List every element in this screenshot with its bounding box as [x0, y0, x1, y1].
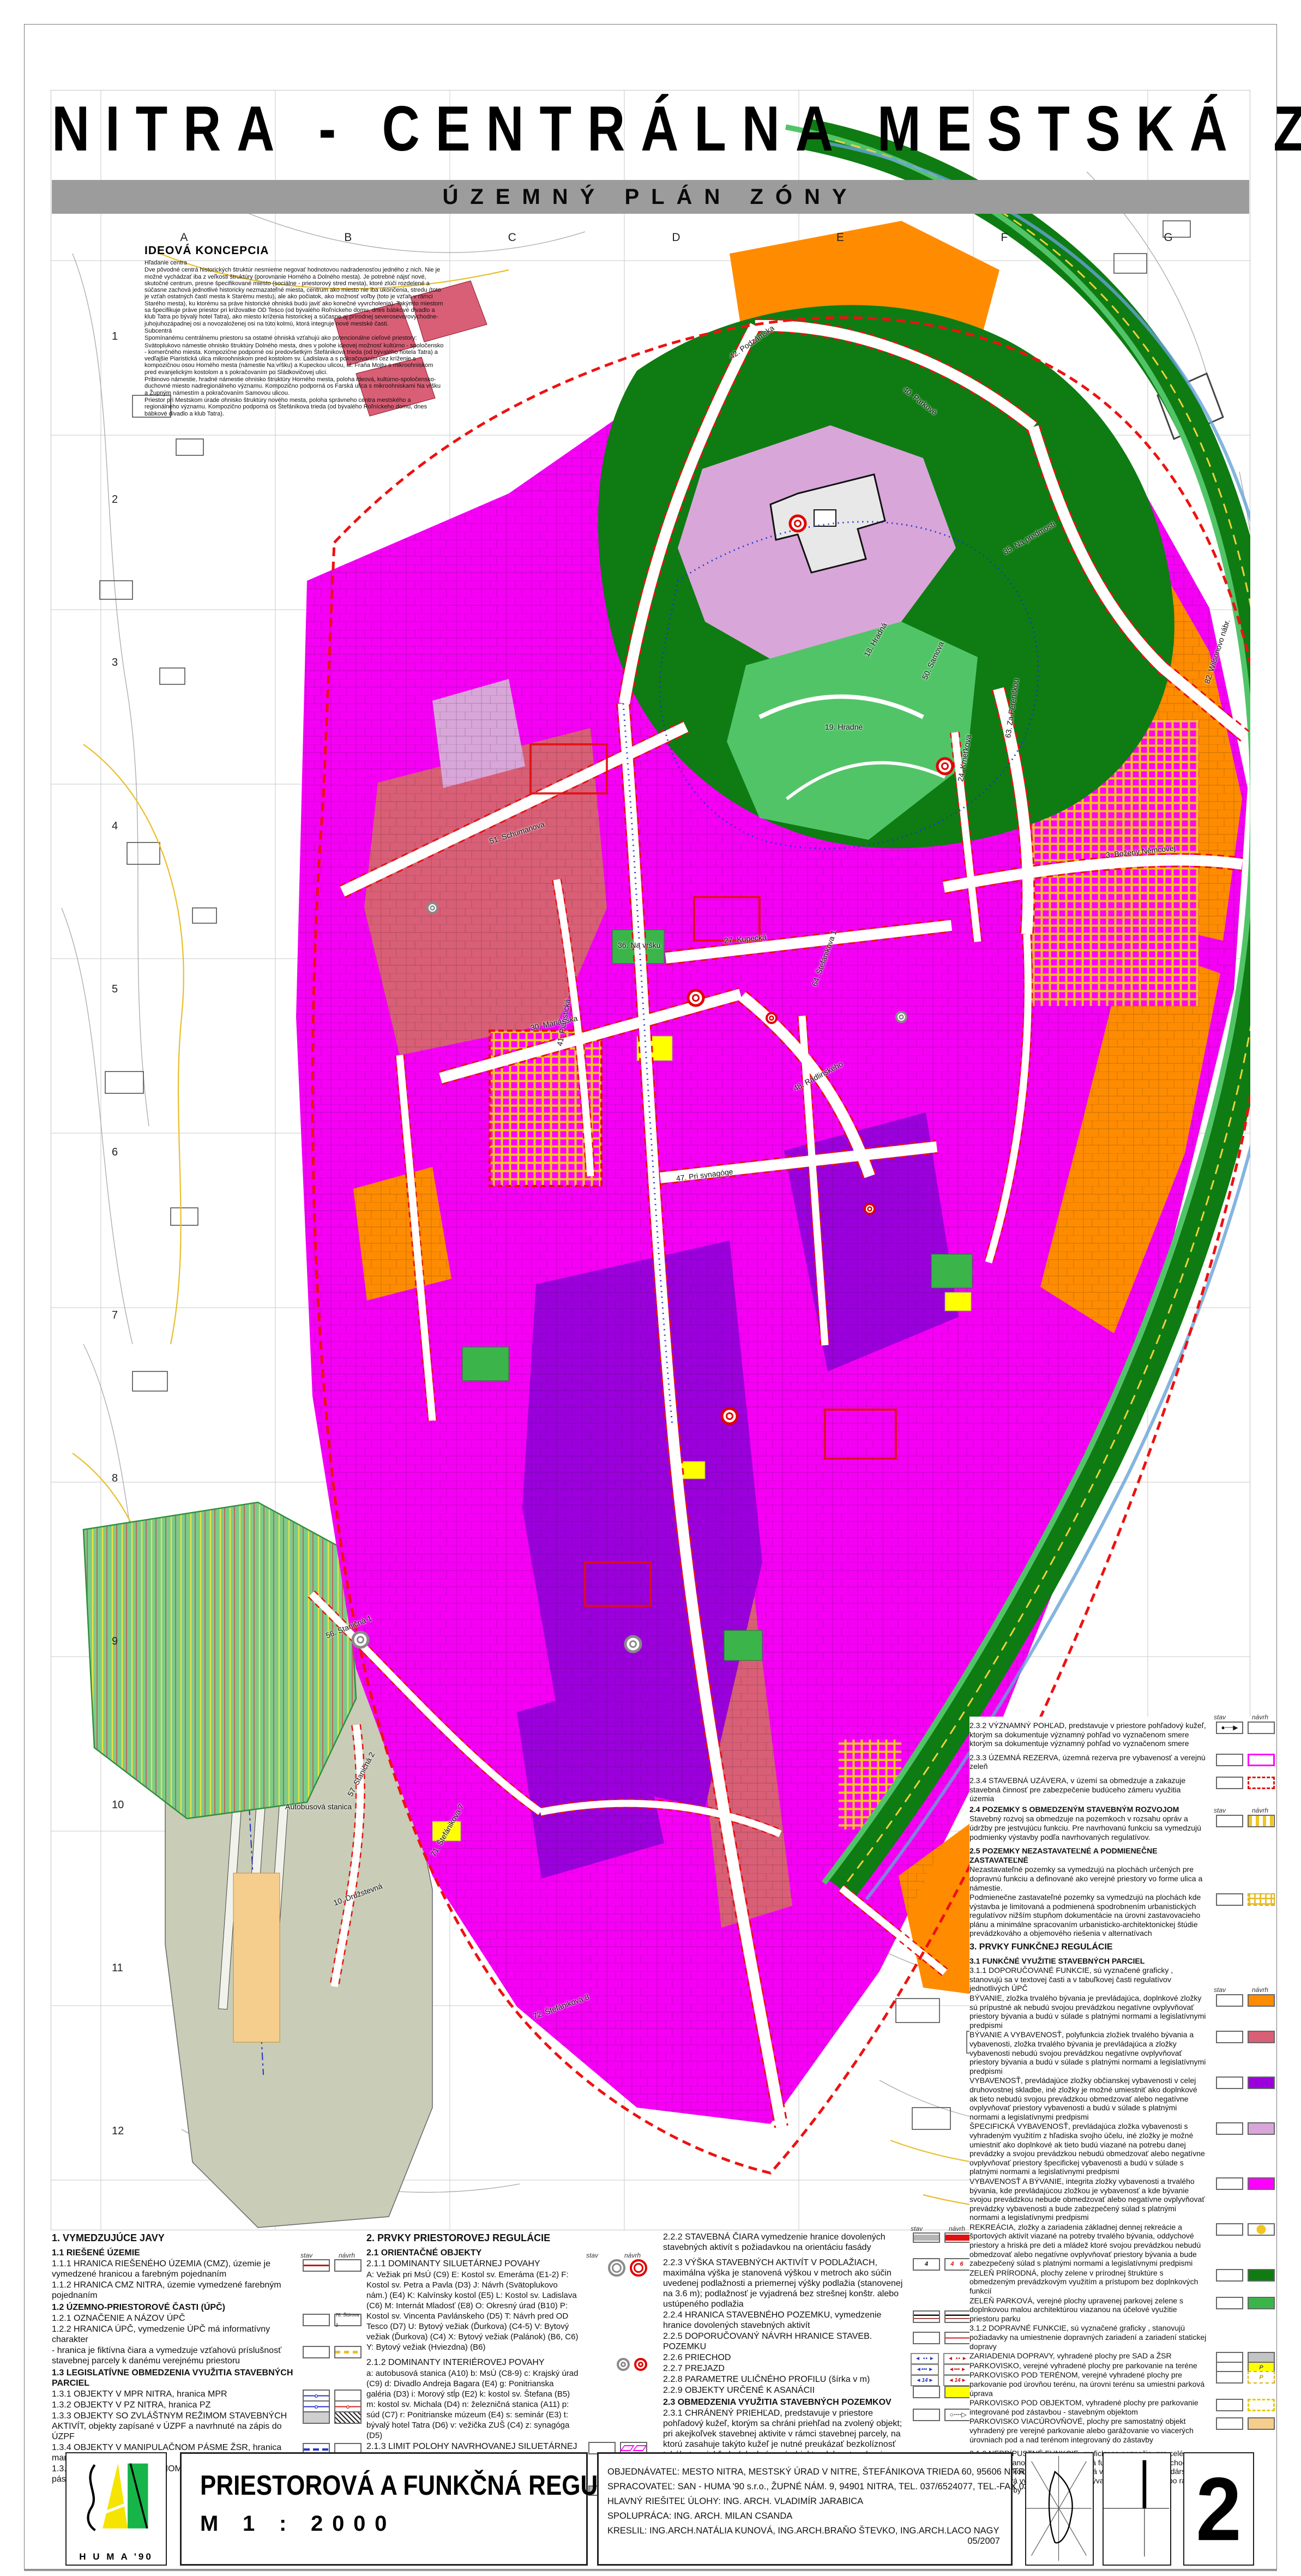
- legend-symbols: [1216, 1754, 1275, 1766]
- legend-item-text: 2.1.1 DOMINANTY SILUETÁRNEJ POVAHY: [366, 2259, 540, 2268]
- legend-item-text: 2.2.8 PARAMETRE ULIČNÉHO PROFILU (šírka …: [663, 2375, 870, 2384]
- street-label: 40. Parkové: [901, 385, 939, 417]
- legend-item: 2.2.6 PRIECHOD: [663, 2352, 972, 2363]
- legend-symbols: [1216, 2177, 1275, 2190]
- symbol-stav: [1216, 1722, 1243, 1734]
- stav-navrh-labels: stavnávrh: [1209, 1806, 1273, 1815]
- legend-item-text: Podmienečne zastavateľné pozemky sa vyme…: [969, 1893, 1201, 1937]
- drawing-scale: M 1 : 2000: [200, 2512, 586, 2536]
- street-label: 48. Radlinského: [792, 1060, 844, 1093]
- legend-item: Podmienečne zastavateľné pozemky sa vyme…: [969, 1893, 1275, 1938]
- street-label: 10. Družstevná: [332, 1881, 383, 1907]
- symbol-stav: [1216, 2371, 1243, 2384]
- legend-item-text: PARKOVISKO POD OBJEKTOM, vyhradené ploch…: [969, 2398, 1198, 2416]
- legend-item-text: 2.4 POZEMKY S OBMEDZENÝM STAVEBNÝM ROZVO…: [969, 1805, 1179, 1814]
- symbol-stav: [913, 2386, 940, 2398]
- symbol-stav: [1216, 1994, 1243, 2007]
- credit-line: SPOLUPRÁCA: ING. ARCH. MILAN CSANDA: [607, 2509, 1002, 2524]
- legend-item-text: 1.3.2 OBJEKTY V PZ NITRA, hranica PZ: [52, 2400, 210, 2410]
- legend-symbols: [1216, 1777, 1275, 1789]
- credit-line: KRESLIL: ING.ARCH.NATÁLIA KUNOVÁ, ING.AR…: [607, 2524, 1002, 2538]
- legend-item: 2.3.4 STAVEBNÁ UZÁVERA, v území sa obmed…: [969, 1776, 1275, 1803]
- legend-symbols: [1216, 2417, 1275, 2430]
- symbol-navrh: [334, 2346, 362, 2358]
- sheet-number-box: 2: [1183, 2452, 1254, 2566]
- legend-symbols: [911, 2364, 972, 2375]
- legend-item-text: 2.2.6 PRIECHOD: [663, 2353, 731, 2362]
- street-label: 51. Schumanova: [489, 820, 546, 846]
- concept-paragraph: Priestor pri Mestskom úrade ohnisko štru…: [144, 397, 445, 417]
- symbol-navrh: 14: [943, 2375, 972, 2386]
- legend-item-text: 2. PRVKY PRIESTOROVEJ REGULÁCIE: [366, 2232, 550, 2243]
- street-label: 57. Staničná 2: [346, 1750, 376, 1798]
- street-label: 72. Štefánikova 8: [532, 1992, 590, 2020]
- keyplan-diagram: [1025, 2452, 1094, 2566]
- legend-item-text: 1.3.1 OBJEKTY V MPR NITRA, hranica MPR: [52, 2390, 227, 2399]
- legend-symbols: [1216, 1994, 1275, 2007]
- legend-item-text: - hranica je fiktívna čiara a vymedzuje …: [52, 2346, 281, 2366]
- legend-item-text: 1.1.2 HRANICA CMZ NITRA, územie vymedzen…: [52, 2280, 281, 2300]
- symbol-navrh: [943, 2364, 972, 2375]
- legend-item: 3.1.2 DOPRAVNÉ FUNKCIE, sú vyznačené gra…: [969, 2324, 1275, 2351]
- symbol-stav: [913, 2409, 940, 2421]
- legend-item: BÝVANIE A VYBAVENOSŤ, polyfunkcia zložie…: [969, 2030, 1275, 2075]
- symbol-stav: [1216, 2399, 1243, 2411]
- symbol-navrh: [1248, 2122, 1275, 2135]
- legend-item-text: 2.1.2 DOMINANTY INTERIÉROVEJ POVAHY: [366, 2358, 545, 2367]
- legend-item: PARKOVISKO VIACÚROVŇOVÉ, plochy pre samo…: [969, 2417, 1275, 2444]
- grid-number: 8: [112, 1397, 128, 1560]
- concept-paragraph: Pribinovo námestie, hradné námestie ohni…: [144, 376, 445, 396]
- symbol-stav: [1216, 2417, 1243, 2430]
- symbol-stav: [1216, 2297, 1243, 2309]
- legend-item: REKREÁCIA, zložky a zariadenia základnej…: [969, 2223, 1275, 2268]
- legend-symbols: [303, 2346, 362, 2358]
- symbol-stav: [911, 2353, 939, 2364]
- legend-item: 2.3.2 VÝZNAMNÝ POHĽAD, predstavuje v pri…: [969, 1721, 1275, 1748]
- symbol-stav: [303, 2259, 330, 2272]
- grid-number: 2: [112, 418, 128, 581]
- legend-item-text: 3.1.2 DOPRAVNÉ FUNKCIE, sú vyznačené gra…: [969, 2324, 1206, 2350]
- street-label: 63. Za Ferenitkou: [1003, 678, 1020, 738]
- legend-item: VYBAVENOSŤ, prevládajúce zložky občiansk…: [969, 2076, 1275, 2121]
- grid-row-numbers: 123456789101112: [112, 255, 128, 2213]
- symbol-stav: 14: [911, 2375, 939, 2386]
- grid-number: 5: [112, 908, 128, 1071]
- street-label: 71. Štefánikova 7: [429, 1802, 466, 1858]
- symbol-stav: [1216, 2122, 1243, 2135]
- symbol-navrh: [1248, 2297, 1275, 2309]
- legend-item-text: VYBAVENOSŤ A BÝVANIE, integrita zložky v…: [969, 2177, 1205, 2222]
- legend-item-text: A: Vežiak pri MsÚ (C9) E: Kostol sv. Eme…: [366, 2270, 578, 2352]
- firm-logo: H U M A '90: [65, 2452, 167, 2566]
- bottom-rule: [24, 2569, 1277, 2571]
- street-label: 30. Mariánska: [529, 1014, 578, 1032]
- legend-item-text: 1.3 LEGISLATÍVNE OBMEDZENIA VYUŽITIA STA…: [52, 2368, 293, 2388]
- subtitle-text: ÚZEMNÝ PLÁN ZÓNY: [442, 185, 858, 209]
- legend-item-text: 2.2.7 PREJAZD: [663, 2364, 725, 2373]
- legend-item-text: ZELEŇ PRÍRODNÁ, plochy zelene v prírodne…: [969, 2268, 1198, 2295]
- credits-box: OBJEDNÁVATEĽ: MESTO NITRA, MESTSKÝ ÚRAD …: [597, 2452, 1013, 2566]
- symbol-navrh: [1248, 1722, 1275, 1734]
- legend-item: ZELEŇ PRÍRODNÁ, plochy zelene v prírodne…: [969, 2268, 1275, 2296]
- legend-item-text: 2.2.4 HRANICA STAVEBNÉHO POZEMKU, vymedz…: [663, 2310, 881, 2330]
- legend-item: ZELEŇ PARKOVÁ, verejné plochy upravenej …: [969, 2296, 1275, 2324]
- legend-symbols: [303, 2259, 362, 2272]
- grid-number: 9: [112, 1560, 128, 1723]
- legend-item-text: 2.3.3 ÚZEMNÁ REZERVA, územná rezerva pre…: [969, 1753, 1206, 1771]
- legend-symbols: [1216, 2122, 1275, 2135]
- sheet-index-diagram: [1103, 2452, 1171, 2566]
- symbol-stav: [303, 2346, 330, 2358]
- legend-item-text: 2.2.9 OBJEKTY URČENÉ K ASANÁCII: [663, 2386, 815, 2395]
- logo-caption: H U M A '90: [67, 2551, 166, 2562]
- legend-symbols: [303, 2411, 362, 2424]
- legend-item: 2.1.1 DOMINANTY SILUETÁRNEJ POVAHY stavn…: [366, 2259, 647, 2269]
- legend-item: 3. PRVKY FUNKČNEJ REGULÁCIE: [969, 1943, 1275, 1952]
- legend-item: 1.3.2 OBJEKTY V PZ NITRA, hranica PZ: [52, 2400, 362, 2410]
- grid-number: 1: [112, 255, 128, 418]
- legend-item: 2.1.2 DOMINANTY INTERIÉROVEJ POVAHY: [366, 2357, 647, 2368]
- legend-item: 2.3.3 ÚZEMNÁ REZERVA, územná rezerva pre…: [969, 1753, 1275, 1771]
- symbol-navrh: [1248, 1893, 1275, 1906]
- legend-symbols: [1216, 2269, 1275, 2282]
- legend-item: 1.3.1 OBJEKTY V MPR NITRA, hranica MPR: [52, 2389, 362, 2399]
- street-label: 18. Hradná: [862, 621, 888, 658]
- legend-item-text: 1.2.2 HRANICA ÚPČ, vymedzenie ÚPČ má inf…: [52, 2325, 270, 2344]
- legend-item: 2.3 OBMEDZENIA VYUŽITIA STAVEBNÝCH POZEM…: [663, 2397, 972, 2408]
- legend-column-1: 1. VYMEDZUJÚCE JAVY 1.1 RIEŠENÉ ÚZEMIE 1…: [52, 2232, 362, 2485]
- legend-item-text: 3.1 FUNKČNÉ VYUŽITIE STAVEBNÝCH PARCIEL: [969, 1957, 1145, 1965]
- legend-item-text: BÝVANIE A VYBAVENOSŤ, polyfunkcia zložie…: [969, 2030, 1206, 2075]
- symbol-navrh: P: [1248, 2371, 1275, 2384]
- legend-item-text: ŠPECIFICKÁ VYBAVENOSŤ, prevládajúca zlož…: [969, 2122, 1205, 2176]
- symbol-navrh: [1248, 1777, 1275, 1789]
- legend-symbols: P: [1216, 2371, 1275, 2384]
- symbol-stav: [913, 2232, 940, 2243]
- symbol-stav: [1216, 2223, 1243, 2236]
- symbol-navrh: [944, 2232, 972, 2243]
- subtitle-band: ÚZEMNÝ PLÁN ZÓNY: [52, 180, 1249, 214]
- legend-symbols: [1216, 2399, 1275, 2411]
- symbol-stav: [1216, 2077, 1243, 2089]
- concept-paragraph: Spomínanému centrálnemu priestoru sa ost…: [144, 335, 445, 341]
- legend-item: 1. VYMEDZUJÚCE JAVY: [52, 2233, 362, 2243]
- symbol-stav: [913, 2332, 940, 2344]
- grid-letter: E: [758, 231, 922, 244]
- symbol-stav: [913, 2310, 940, 2323]
- symbol-navrh: [1248, 2177, 1275, 2190]
- symbol-navrh: [1248, 1754, 1275, 1766]
- symbol-navrh: [334, 2259, 362, 2272]
- legend-item: ŠPECIFICKÁ VYBAVENOSŤ, prevládajúca zlož…: [969, 2122, 1275, 2176]
- concept-paragraph: Subcentrá: [144, 328, 445, 334]
- symbol-navrh: [944, 2332, 972, 2344]
- symbol-navrh: [943, 2353, 972, 2364]
- legend-item-text: ZARIADENIA DOPRAVY, vyhradené plochy pre…: [969, 2351, 1172, 2360]
- legend-item: 2.2.3 VÝŠKA STAVEBNÝCH AKTIVÍT V PODLAŽI…: [663, 2258, 972, 2309]
- legend-item-text: 1.1 RIEŠENÉ ÚZEMIE: [52, 2248, 140, 2258]
- legend-item-text: BÝVANIE, zložka trvalého bývania je prev…: [969, 1994, 1206, 2030]
- symbol-navrh: [334, 2411, 362, 2424]
- legend-item-text: 1.3.3 OBJEKTY SO ZVLÁŠTNYM REŽIMOM STAVE…: [52, 2411, 287, 2441]
- grid-number: 6: [112, 1071, 128, 1234]
- legend-item-text: VYBAVENOSŤ, prevládajúce zložky občiansk…: [969, 2076, 1197, 2121]
- grid-number: 3: [112, 581, 128, 744]
- symbol-navrh: [1248, 2031, 1275, 2043]
- legend-column-4: 2.3.2 VÝZNAMNÝ POHĽAD, predstavuje v pri…: [969, 1717, 1275, 2495]
- legend-item: PARKOVISKO POD OBJEKTOM, vyhradené ploch…: [969, 2398, 1275, 2416]
- legend-item-text: ZELEŇ PARKOVÁ, verejné plochy upravenej …: [969, 2296, 1183, 2323]
- symbol-navrh: [1248, 2223, 1275, 2236]
- credit-line: OBJEDNÁVATEĽ: MESTO NITRA, MESTSKÝ ÚRAD …: [607, 2465, 1002, 2479]
- street-label: 47. Pri synagóge: [676, 1167, 733, 1183]
- legend-symbols: [911, 2353, 972, 2364]
- legend-item-text: 1.2.1 OZNAČENIE A NÁZOV ÚPČ: [52, 2314, 185, 2323]
- legend-symbols: 4 4 6: [913, 2258, 972, 2271]
- symbol-stav: [1216, 2177, 1243, 2190]
- legend-item: a: autobusová stanica (A10) b: MsÚ (C8-9…: [366, 2368, 647, 2441]
- legend-item-text: 1. VYMEDZUJÚCE JAVY: [52, 2232, 165, 2243]
- legend-symbols: [913, 2332, 972, 2344]
- concept-heading: IDEOVÁ KONCEPCIA: [144, 244, 445, 257]
- symbol-stav: [1216, 1777, 1243, 1789]
- symbol-navrh: [944, 2409, 972, 2421]
- legend-item-text: PARKOVISKO VIACÚROVŇOVÉ, plochy pre samo…: [969, 2417, 1194, 2443]
- symbol-navrh: [1248, 2077, 1275, 2089]
- symbol-navrh: [1248, 2399, 1275, 2411]
- concept-paragraph: Svätoplukovo námestie ohnisko štruktúry …: [144, 342, 445, 376]
- legend-symbols: [1216, 2297, 1275, 2309]
- legend-column-3: 2.2.2 STAVEBNÁ ČIARA vymedzenie hranice …: [663, 2232, 972, 2471]
- symbol-stav: [303, 2411, 330, 2424]
- legend-symbols: [913, 2386, 972, 2398]
- drawing-date: 05/2007: [967, 2534, 1000, 2549]
- grid-letter: B: [266, 231, 430, 244]
- legend-item-text: 2.5 POZEMKY NEZASTAVATEĽNÉ A PODMIENEČNE…: [969, 1846, 1158, 1864]
- sheet-number: 2: [1196, 2457, 1241, 2561]
- legend-symbols: [1216, 1722, 1275, 1734]
- legend-item: 2.2.9 OBJEKTY URČENÉ K ASANÁCII: [663, 2385, 972, 2396]
- symbol-stav: [1216, 2269, 1243, 2282]
- legend-item: 2.2.7 PREJAZD: [663, 2363, 972, 2374]
- symbol-navrh: [1248, 2269, 1275, 2282]
- legend-item: 2.2.8 PARAMETRE ULIČNÉHO PROFILU (šírka …: [663, 2374, 972, 2385]
- concept-text-block: IDEOVÁ KONCEPCIA Hľadanie centraDve pôvo…: [144, 244, 445, 417]
- legend-item: PARKOVISKO, verejné vyhradené plochy pre…: [969, 2361, 1275, 2370]
- legend-item: 3.1 FUNKČNÉ VYUŽITIE STAVEBNÝCH PARCIEL: [969, 1957, 1275, 1966]
- street-label: 27. Kupecká: [724, 932, 767, 945]
- grid-letter: G: [1086, 231, 1250, 244]
- street-label: 50. Samova: [920, 640, 945, 681]
- legend-item-text: 2.2.5 DOPORUČOVANÝ NÁVRH HRANICE STAVEB.…: [663, 2332, 872, 2351]
- credit-line: HLAVNÝ RIEŠITEĽ ÚLOHY: ING. ARCH. VLADIM…: [607, 2494, 1002, 2509]
- legend-item: A: Vežiak pri MsÚ (C9) E: Kostol sv. Eme…: [366, 2270, 647, 2352]
- drawing-title-box: PRIESTOROVÁ A FUNKČNÁ REGULÁCIA M 1 : 20…: [180, 2452, 588, 2566]
- street-label: 56. Staničná 1: [324, 1614, 373, 1640]
- plan-sheet: 42. Podzámska 40. Parkové 35. Na predmos…: [0, 0, 1301, 2576]
- legend-item: 1.3 LEGISLATÍVNE OBMEDZENIA VYUŽITIA STA…: [52, 2368, 362, 2388]
- page-title: NITRA - CENTRÁLNA MESTSKÁ ZÓNA: [52, 93, 1249, 166]
- grid-number: 4: [112, 745, 128, 908]
- legend-item: 2.2.2 STAVEBNÁ ČIARA vymedzenie hranice …: [663, 2232, 972, 2253]
- legend-item-text: 2.3.4 STAVEBNÁ UZÁVERA, v území sa obmed…: [969, 1776, 1185, 1803]
- grid-column-letters: ABCDEFG: [102, 231, 1250, 244]
- legend-symbols: [1216, 1893, 1275, 1906]
- legend-symbols: [1216, 2223, 1275, 2236]
- symbol-navrh: [944, 2310, 972, 2323]
- symbol-stav: 4: [913, 2258, 940, 2271]
- street-label: 35. Na predmostí: [1002, 519, 1057, 556]
- legend-item-text: REKREÁCIA, zložky a zariadenia základnej…: [969, 2223, 1201, 2267]
- legend-item: 1.2.1 OZNAČENIE A NÁZOV ÚPČ 76. Štúrova …: [52, 2313, 362, 2324]
- grid-letter: F: [922, 231, 1086, 244]
- legend-symbols: [1216, 2077, 1275, 2089]
- huma90-logo-art: [67, 2453, 165, 2546]
- street-label: 82. Wilsonovo nábr.: [1202, 618, 1231, 685]
- legend-item-text: 3. PRVKY FUNKČNEJ REGULÁCIE: [969, 1942, 1113, 1952]
- concept-paragraph: Dve pôvodné centrá historických štruktúr…: [144, 267, 445, 327]
- symbol-navrh: [1248, 2417, 1275, 2430]
- grid-number: 7: [112, 1234, 128, 1397]
- legend-item: 1.1.1 HRANICA RIEŠENÉHO ÚZEMIA (CMZ), úz…: [52, 2259, 362, 2279]
- legend-item-text: a: autobusová stanica (A10) b: MsÚ (C8-9…: [366, 2369, 579, 2440]
- grid-letter: C: [430, 231, 594, 244]
- legend-item: ZARIADENIA DOPRAVY, vyhradené plochy pre…: [969, 2351, 1275, 2361]
- street-label: 19. Hradné: [825, 723, 863, 731]
- legend-item: 1.3.3 OBJEKTY SO ZVLÁŠTNYM REŽIMOM STAVE…: [52, 2411, 362, 2442]
- stav-navrh-labels: stavnávrh: [1209, 1713, 1273, 1722]
- legend-item: 2.2.4 HRANICA STAVEBNÉHO POZEMKU, vymedz…: [663, 2310, 972, 2331]
- legend-symbols: [913, 2409, 972, 2421]
- legend-item: 2. PRVKY PRIESTOROVEJ REGULÁCIE: [366, 2233, 647, 2243]
- legend-item: BÝVANIE, zložka trvalého bývania je prev…: [969, 1994, 1275, 2030]
- legend-item: VYBAVENOSŤ A BÝVANIE, integrita zložky v…: [969, 2177, 1275, 2222]
- legend-item: Nezastavateľné pozemky sa vymedzujú na p…: [969, 1865, 1275, 1892]
- legend-item-text: 2.2.3 VÝŠKA STAVEBNÝCH AKTIVÍT V PODLAŽI…: [663, 2258, 902, 2309]
- legend-item-text: 1.2 ÚZEMNO-PRIESTOROVÉ ČASTI (ÚPČ): [52, 2303, 225, 2312]
- legend-item-text: PARKOVISKO, verejné vyhradené plochy pre…: [969, 2361, 1197, 2370]
- symbol-navrh: [1248, 1994, 1275, 2007]
- grid-letter: D: [594, 231, 758, 244]
- symbol-navrh: [1248, 1815, 1275, 1827]
- street-label: Autobusová stanica: [285, 1802, 352, 1811]
- concept-paragraph: Hľadanie centra: [144, 260, 445, 266]
- legend-item: 2.2.5 DOPORUČOVANÝ NÁVRH HRANICE STAVEB.…: [663, 2331, 972, 2352]
- legend-item: - hranica je fiktívna čiara a vymedzuje …: [52, 2345, 362, 2366]
- drawing-title: PRIESTOROVÁ A FUNKČNÁ REGULÁCIA: [200, 2470, 586, 2502]
- symbol-stav: [911, 2364, 939, 2375]
- legend-item-text: 2.3 OBMEDZENIA VYUŽITIA STAVEBNÝCH POZEM…: [663, 2398, 892, 2407]
- grid-letter: A: [102, 231, 266, 244]
- symbol-navrh: 4 6: [944, 2258, 972, 2271]
- street-label: 42. Podzámska: [727, 323, 775, 360]
- symbol-stav: [1216, 2031, 1243, 2043]
- legend-item-text: Nezastavateľné pozemky sa vymedzujú na p…: [969, 1865, 1202, 1892]
- street-label: 24. Kmeťkova: [956, 734, 973, 782]
- legend-item: 1.2.2 HRANICA ÚPČ, vymedzenie ÚPČ má inf…: [52, 2324, 362, 2345]
- symbol-stav: [1216, 1815, 1243, 1827]
- legend-symbols: [913, 2310, 972, 2323]
- legend-item-text: 1.1.1 HRANICA RIEŠENÉHO ÚZEMIA (CMZ), úz…: [52, 2259, 270, 2279]
- legend-item-text: PARKOVISKO POD TERÉNOM, verejné vyhraden…: [969, 2370, 1204, 2397]
- stav-navrh-labels: stavnávrh: [1209, 1985, 1273, 1995]
- street-label: 64. Štefánikova 1: [810, 929, 838, 988]
- legend-symbols: [1216, 2031, 1275, 2043]
- symbol-stav: [1216, 1754, 1243, 1766]
- legend-item-text: 2.2.2 STAVEBNÁ ČIARA vymedzenie hranice …: [663, 2232, 886, 2252]
- grid-number: 10: [112, 1724, 128, 1887]
- street-label: 36. Na vŕšku: [618, 941, 661, 949]
- grid-number: 11: [112, 1887, 128, 2050]
- legend-item: 1.2 ÚZEMNO-PRIESTOROVÉ ČASTI (ÚPČ): [52, 2302, 362, 2313]
- legend-item-text: 2.1 ORIENTAČNÉ OBJEKTY: [366, 2248, 481, 2258]
- legend-item-text: 2.3.2 VÝZNAMNÝ POHĽAD, predstavuje v pri…: [969, 1721, 1206, 1748]
- legend-symbols: [913, 2232, 972, 2243]
- street-label: 3. Boženy Němcovej: [1105, 844, 1176, 859]
- legend-item-text: Stavebný rozvoj sa obmedzuje na pozemkoc…: [969, 1814, 1201, 1841]
- legend-item: PARKOVISKO POD TERÉNOM, verejné vyhraden…: [969, 2370, 1275, 2398]
- legend-item: 2.5 POZEMKY NEZASTAVATEĽNÉ A PODMIENEČNE…: [969, 1846, 1275, 1864]
- legend-symbols: 14 14: [911, 2375, 972, 2386]
- symbol-stav: [1216, 1893, 1243, 1906]
- symbol-navrh: [944, 2386, 972, 2398]
- legend-item: Stavebný rozvoj sa obmedzuje na pozemkoc…: [969, 1814, 1275, 1841]
- legend-item: 1.1.2 HRANICA CMZ NITRA, územie vymedzen…: [52, 2280, 362, 2301]
- legend-item-text: 3.1.1 DOPORUČOVANÉ FUNKCIE, sú vyznačené…: [969, 1966, 1173, 1993]
- grid-number: 12: [112, 2050, 128, 2213]
- legend-symbols: [1216, 1815, 1275, 1827]
- credit-line: SPRACOVATEĽ: SAN - HUMA '90 s.r.o., ŽUPN…: [607, 2479, 1002, 2494]
